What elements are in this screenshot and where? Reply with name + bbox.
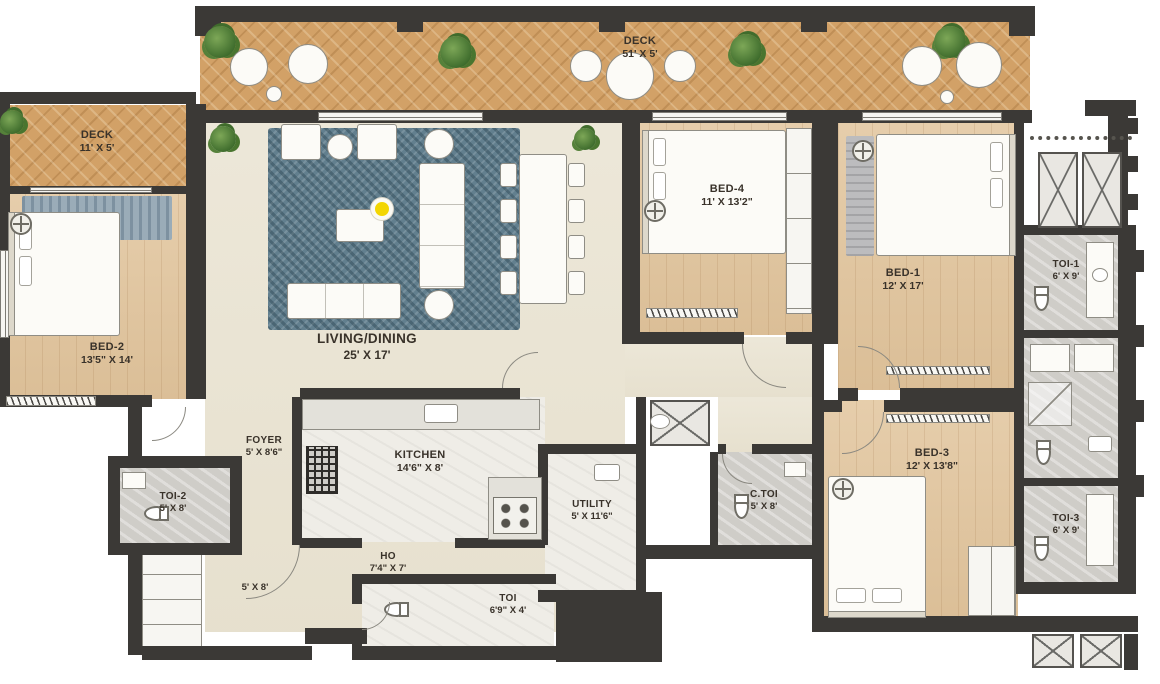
side-table xyxy=(424,129,454,159)
room-label-ho: HO 7'4" X 7' xyxy=(370,550,407,575)
room-name: BED-1 xyxy=(882,266,923,280)
louver-window xyxy=(886,366,990,375)
kitchen-counter xyxy=(302,399,540,430)
dining-chair xyxy=(500,271,517,295)
dining-chair xyxy=(568,199,585,223)
room-name: BED-3 xyxy=(906,446,958,460)
wardrobe-closet xyxy=(142,548,202,650)
deck-chair xyxy=(902,46,942,86)
wall-segment xyxy=(556,592,662,662)
stove xyxy=(493,497,537,534)
deck-chair xyxy=(664,50,696,82)
plant-icon xyxy=(210,126,236,152)
deck-chair xyxy=(288,44,328,84)
headboard xyxy=(828,611,926,618)
lamp-icon xyxy=(371,198,393,220)
wall-pillar xyxy=(397,6,423,32)
pillow xyxy=(872,588,902,603)
shower xyxy=(1028,382,1072,426)
wash-basin xyxy=(1088,436,1112,452)
duct-shaft xyxy=(1080,634,1122,668)
room-label-toi3: TOI-3 6' X 9' xyxy=(1053,512,1080,537)
room-name: DECK xyxy=(80,128,115,142)
wall-pillar xyxy=(1136,325,1144,347)
plant-icon xyxy=(204,26,236,58)
vanity-counter xyxy=(122,472,146,489)
vanity-counter xyxy=(1086,494,1114,566)
wall-segment xyxy=(812,344,824,630)
wall-segment xyxy=(300,538,362,548)
wall-pillar xyxy=(801,6,827,32)
room-name: UTILITY xyxy=(571,498,612,511)
wall-segment xyxy=(108,456,120,555)
vanity-counter xyxy=(784,462,806,477)
pillow xyxy=(653,138,666,166)
utility-sink xyxy=(594,464,620,481)
room-label-toi1: TOI-1 6' X 9' xyxy=(1053,258,1080,283)
wash-basin xyxy=(1092,268,1108,282)
louver-window xyxy=(6,396,96,406)
wall-pillar xyxy=(599,6,625,32)
bath-shelf xyxy=(1030,344,1070,372)
plant-icon xyxy=(440,36,472,68)
ceiling-fan-icon xyxy=(644,200,666,222)
service-shaft xyxy=(306,446,338,494)
room-label-toi-powder: TOI 6'9" X 4' xyxy=(490,592,527,617)
wall-segment xyxy=(538,444,640,454)
wall-segment xyxy=(622,332,744,344)
window xyxy=(318,112,483,121)
armchair xyxy=(357,124,397,160)
louver-window xyxy=(886,414,990,423)
ceiling-fan-icon xyxy=(10,213,32,235)
deck-chair xyxy=(956,42,1002,88)
room-dims: 12' X 17' xyxy=(882,280,923,294)
duct-shaft xyxy=(1082,152,1122,228)
wall-segment xyxy=(1024,330,1120,338)
room-name: BED-2 xyxy=(81,340,133,354)
room-name: C.TOI xyxy=(750,488,778,501)
room-dims: 5' X 8'6" xyxy=(246,447,283,459)
plant-icon xyxy=(730,34,762,66)
wall-segment xyxy=(300,388,520,399)
wall-segment xyxy=(884,400,1018,412)
wall-pillar xyxy=(1136,250,1144,272)
pillow xyxy=(990,142,1003,172)
room-label-kitchen: KITCHEN 14'6" X 8' xyxy=(395,448,446,476)
room-dims: 6'9" X 4' xyxy=(490,605,527,617)
headboard xyxy=(1009,134,1016,256)
plant-icon xyxy=(0,110,24,134)
wall-pillar xyxy=(1009,6,1035,36)
dining-chair xyxy=(500,199,517,223)
dining-chair xyxy=(568,163,585,187)
room-dims: 5' X 11'6" xyxy=(571,511,612,523)
armchair xyxy=(281,124,321,160)
window xyxy=(30,187,152,193)
wall-segment xyxy=(186,104,206,399)
duct-shaft xyxy=(1032,634,1074,668)
wall-segment xyxy=(292,397,302,545)
louver-window xyxy=(646,308,738,318)
room-dims: 6' X 9' xyxy=(1053,525,1080,537)
pillow xyxy=(653,172,666,200)
wall-segment xyxy=(622,110,640,342)
wall-segment xyxy=(718,444,726,454)
wall-segment xyxy=(108,456,240,468)
ledge-edge xyxy=(1030,136,1132,140)
wall-segment xyxy=(1014,225,1024,586)
room-dims: 5' X 8' xyxy=(750,501,778,513)
room-name: TOI-1 xyxy=(1053,258,1080,271)
room-name: TOI-2 xyxy=(160,490,187,503)
wall-segment xyxy=(0,92,196,104)
pillow xyxy=(19,256,32,286)
room-name: TOI xyxy=(490,592,527,605)
room-label-deck-main: DECK 51' X 5' xyxy=(622,34,657,62)
room-label-bed1: BED-1 12' X 17' xyxy=(882,266,923,294)
ceiling-fan-icon xyxy=(832,478,854,500)
room-dims: 5' X 8' xyxy=(242,582,269,594)
passage-dims-label: 5' X 8' xyxy=(242,582,269,594)
room-name: LIVING/DINING xyxy=(317,330,417,348)
room-dims: 51' X 5' xyxy=(622,48,657,62)
room-label-utility: UTILITY 5' X 11'6" xyxy=(571,498,612,523)
wall-segment xyxy=(640,545,818,559)
room-label-ctoi: C.TOI 5' X 8' xyxy=(750,488,778,513)
wall-segment xyxy=(142,646,312,660)
room-label-bed3: BED-3 12' X 13'8" xyxy=(906,446,958,474)
pillow xyxy=(990,178,1003,208)
bath-shelf xyxy=(1074,344,1114,372)
room-dims: 13'5" X 14' xyxy=(81,354,133,368)
floor-plan-image: DECK 51' X 5' DECK 11' X 5' BED-2 13'5" … xyxy=(0,0,1160,684)
room-label-bed2: BED-2 13'5" X 14' xyxy=(81,340,133,368)
room-label-bed4: BED-4 11' X 13'2" xyxy=(701,182,752,210)
deck-side-table xyxy=(940,90,954,104)
dining-table xyxy=(519,154,567,304)
wall-segment xyxy=(1024,478,1120,486)
duct-shaft xyxy=(1038,152,1078,228)
wall-segment xyxy=(352,574,556,584)
side-table xyxy=(327,134,353,160)
room-name: BED-4 xyxy=(701,182,752,196)
pillow xyxy=(836,588,866,603)
sofa xyxy=(287,283,401,319)
wall-pillar xyxy=(1128,118,1138,134)
room-dims: 5' X 8' xyxy=(160,503,187,515)
deck-chair xyxy=(230,48,268,86)
wardrobe xyxy=(968,546,1016,616)
wall-segment xyxy=(812,110,838,344)
wall-segment xyxy=(1014,582,1120,594)
dining-chair xyxy=(500,163,517,187)
room-name: FOYER xyxy=(246,434,283,447)
door-swing-arc xyxy=(152,407,186,441)
room-label-living-dining: LIVING/DINING 25' X 17' xyxy=(317,330,417,363)
wall-segment xyxy=(636,397,646,597)
kitchen-sink xyxy=(424,404,458,423)
ceiling-fan-icon xyxy=(852,140,874,162)
wall-segment xyxy=(128,543,142,655)
wall-segment xyxy=(230,456,242,555)
room-dims: 12' X 13'8" xyxy=(906,460,958,474)
dining-chair xyxy=(500,235,517,259)
room-label-foyer: FOYER 5' X 8'6" xyxy=(246,434,283,459)
deck-side-table xyxy=(266,86,282,102)
room-label-deck-left: DECK 11' X 5' xyxy=(80,128,115,156)
room-name: DECK xyxy=(622,34,657,48)
wall-pillar xyxy=(1136,400,1144,422)
room-dims: 25' X 17' xyxy=(317,348,417,364)
room-dims: 11' X 13'2" xyxy=(701,196,752,210)
room-name: TOI-3 xyxy=(1053,512,1080,525)
headboard xyxy=(642,130,649,254)
side-table xyxy=(424,290,454,320)
room-dims: 11' X 5' xyxy=(80,142,115,156)
wall-pillar xyxy=(1128,194,1138,210)
room-name: KITCHEN xyxy=(395,448,446,462)
wall-pillar xyxy=(1128,156,1138,172)
wall-segment xyxy=(752,444,818,454)
wardrobe xyxy=(786,128,812,314)
floor-corridor xyxy=(625,337,822,397)
room-dims: 14'6" X 8' xyxy=(395,462,446,476)
deck-chair xyxy=(570,50,602,82)
room-label-toi2: TOI-2 5' X 8' xyxy=(160,490,187,515)
wall-segment xyxy=(812,616,1138,632)
wall-segment xyxy=(352,646,556,660)
window xyxy=(862,112,1002,121)
sofa xyxy=(419,163,465,289)
wash-basin xyxy=(650,414,670,429)
room-dims: 6' X 9' xyxy=(1053,271,1080,283)
dining-chair xyxy=(568,235,585,259)
plant-icon xyxy=(574,128,596,150)
window xyxy=(652,112,787,121)
wall-segment xyxy=(1124,634,1138,670)
wall-pillar xyxy=(1136,475,1144,497)
room-dims: 7'4" X 7' xyxy=(370,563,407,575)
dining-chair xyxy=(568,271,585,295)
wall-segment xyxy=(710,452,718,545)
wall-segment xyxy=(822,400,842,412)
wall-segment xyxy=(1118,225,1136,594)
room-name: HO xyxy=(370,550,407,563)
